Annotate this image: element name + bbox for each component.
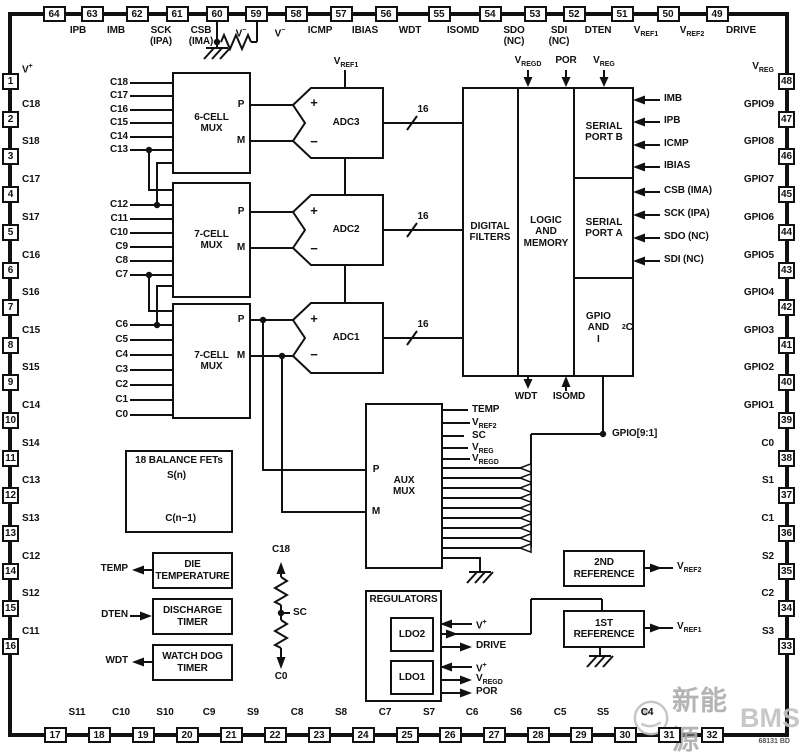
chain-c18-label: C18 [259, 544, 303, 555]
pin-label: C9 [189, 707, 229, 718]
pin-box: 42 [778, 299, 795, 316]
block-serial-port-b: SERIALPORT B [575, 87, 633, 177]
block-logic-memory: LOGICANDMEMORY [518, 87, 574, 377]
adc-name-label: ADC3 [321, 117, 371, 128]
regulator-io-label: V+ [476, 617, 536, 631]
adc-plus-sign: + [306, 204, 322, 217]
mux-input-label: C5 [86, 334, 128, 345]
mux-input-label: C11 [86, 213, 128, 224]
pin-box: 5 [2, 224, 19, 241]
pin-box: 40 [778, 374, 795, 391]
aux-input-label: VREGD [472, 453, 532, 468]
pin-box: 16 [2, 638, 19, 655]
mux-output-label: M [234, 135, 248, 146]
gpio-bus-label: GPIO[9:1] [612, 428, 682, 439]
pin-label: C5 [540, 707, 580, 718]
pin-label: SDI(NC) [537, 25, 581, 47]
pin-label: DRIVE [719, 25, 763, 36]
vref1-adc-label: VREF1 [318, 56, 374, 71]
pin-box: 13 [2, 525, 19, 542]
pin-box: 4 [2, 186, 19, 203]
pin-label: C16 [22, 250, 68, 261]
pin-label: C0 [718, 438, 774, 449]
pin-label: GPIO7 [718, 174, 774, 185]
figure-code: 68131 BD [726, 738, 790, 745]
pin-box: 49 [706, 6, 729, 22]
fet-source-label: S(n) [146, 470, 186, 481]
wires-logic-bottom [528, 375, 566, 391]
pin-box: 11 [2, 450, 19, 467]
block-diagram: 6-CELLMUX 7-CELLMUX 7-CELLMUX DIGITALFIL… [0, 0, 800, 753]
regulators-title: REGULATORS [365, 594, 442, 605]
pin-box: 59 [245, 6, 268, 22]
pin-box: 56 [375, 6, 398, 22]
pin-label: S6 [496, 707, 536, 718]
pin-box: 3 [2, 148, 19, 165]
pin-box: 14 [2, 563, 19, 580]
pin-label: S17 [22, 212, 68, 223]
mux-output-label: P [369, 464, 383, 475]
pin-label: S12 [22, 588, 68, 599]
pin-label: C4 [627, 707, 667, 718]
pin-label: S9 [233, 707, 273, 718]
pin-box: 64 [43, 6, 66, 22]
logic-top-label: VREG [577, 55, 631, 70]
aux-input-label: SC [472, 430, 532, 441]
pin-label: C8 [277, 707, 317, 718]
block-watchdog-timer: WATCH DOGTIMER [152, 644, 233, 681]
pin-label: GPIO3 [718, 325, 774, 336]
pin-label: C1 [718, 513, 774, 524]
port-b-input-label: IMB [664, 93, 734, 104]
pin-label: ICMP [298, 25, 342, 36]
pin-box: 15 [2, 600, 19, 617]
pin-box: 26 [439, 727, 462, 743]
pin-box: 46 [778, 148, 795, 165]
left-io-label: DTEN [84, 609, 128, 620]
mux-input-label: C2 [86, 379, 128, 390]
pin-label: S16 [22, 287, 68, 298]
aux-input-label: TEMP [472, 404, 532, 415]
fet-cell-label: C(n−1) [128, 513, 196, 524]
pin-label: V− [258, 25, 302, 39]
pin-box: 32 [701, 727, 724, 743]
mux-input-label: C13 [86, 144, 128, 155]
pin-label: DTEN [576, 25, 620, 36]
port-a-input-label: CSB (IMA) [664, 185, 734, 196]
mux-output-label: M [369, 506, 383, 517]
block-discharge-timer: DISCHARGETIMER [152, 598, 233, 635]
mux-input-label: C7 [86, 269, 128, 280]
pin-label: C15 [22, 325, 68, 336]
block-1st-reference: 1STREFERENCE [563, 610, 645, 648]
pin-label: SCK(IPA) [139, 25, 183, 47]
port-a-input-label: SDI (NC) [664, 254, 734, 265]
open-arrowheads-gpio [520, 464, 531, 552]
isomd-in-label: ISOMD [547, 391, 591, 402]
wdt-out-label: WDT [506, 391, 546, 402]
pin-box: 33 [778, 638, 795, 655]
pin-box: 6 [2, 262, 19, 279]
pin-label: C12 [22, 551, 68, 562]
vref2-out-label: VREF2 [677, 561, 731, 576]
port-b-input-label: IBIAS [664, 160, 734, 171]
pin-box: 60 [206, 6, 229, 22]
pin-box: 19 [132, 727, 155, 743]
pin-label: C14 [22, 400, 68, 411]
pin-label: S7 [409, 707, 449, 718]
pin-label: S10 [145, 707, 185, 718]
pin-box: 20 [176, 727, 199, 743]
pin-label: VREG [718, 61, 774, 76]
arrowheads-serial-inputs [633, 96, 645, 266]
pin-box: 48 [778, 73, 795, 90]
pin-label: CSB(IMA) [179, 25, 223, 47]
mux-output-label: M [234, 242, 248, 253]
pin-box: 34 [778, 600, 795, 617]
block-2nd-reference: 2NDREFERENCE [563, 550, 645, 587]
pin-box: 57 [330, 6, 353, 22]
bus-width-label: 16 [411, 211, 435, 222]
pin-box: 2 [2, 111, 19, 128]
pin-box: 29 [570, 727, 593, 743]
pin-label: C17 [22, 174, 68, 185]
pin-label: S11 [57, 707, 97, 718]
pin-label: WDT [388, 25, 432, 36]
pin-label: S15 [22, 362, 68, 373]
regulator-io-label: DRIVE [476, 640, 536, 651]
pin-box: 43 [778, 262, 795, 279]
mux-input-label: C14 [86, 131, 128, 142]
chain-sc-label: SC [293, 607, 323, 618]
wires-mux-inputs [130, 83, 172, 415]
pin-box: 61 [166, 6, 189, 22]
port-a-input-label: SDO (NC) [664, 231, 734, 242]
adc-plus-sign: + [306, 312, 322, 325]
block-ldo2: LDO2 [390, 617, 434, 652]
pin-label: S13 [22, 513, 68, 524]
pin-label: GPIO1 [718, 400, 774, 411]
pin-box: 10 [2, 412, 19, 429]
port-b-input-label: IPB [664, 115, 734, 126]
pin-box: 21 [220, 727, 243, 743]
mux-input-label: C12 [86, 199, 128, 210]
pin-box: 7 [2, 299, 19, 316]
block-digital-filters: DIGITALFILTERS [462, 87, 518, 377]
arrowheads-logic-top [524, 77, 609, 87]
pin-box: 25 [396, 727, 419, 743]
regulator-io-label: POR [476, 686, 536, 697]
adc-plus-sign: + [306, 96, 322, 109]
pin-label: GPIO4 [718, 287, 774, 298]
mux-input-label: C3 [86, 364, 128, 375]
left-io-label: TEMP [84, 563, 128, 574]
adc-name-label: ADC1 [321, 332, 371, 343]
adc-minus-sign: − [306, 348, 322, 361]
port-a-input-label: SCK (IPA) [664, 208, 734, 219]
pin-box: 36 [778, 525, 795, 542]
block-serial-port-a: SERIALPORT A [575, 179, 633, 277]
pin-label: S3 [718, 626, 774, 637]
mux-input-label: C8 [86, 255, 128, 266]
arrowheads-logic-bottom [524, 376, 571, 389]
chain-c0-label: C0 [259, 671, 303, 682]
mux-input-label: C1 [86, 394, 128, 405]
balance-fets-title: 18 BALANCE FETs [127, 455, 231, 466]
pin-label: C18 [22, 99, 68, 110]
pin-box: 58 [285, 6, 308, 22]
pin-label: S2 [718, 551, 774, 562]
mux-input-label: C10 [86, 227, 128, 238]
pin-label: S5 [583, 707, 623, 718]
bus-width-label: 16 [411, 104, 435, 115]
pin-label: V+ [22, 61, 68, 75]
pin-label: VREF2 [670, 25, 714, 40]
pin-label: C13 [22, 475, 68, 486]
left-io-label: WDT [84, 655, 128, 666]
pin-box: 27 [483, 727, 506, 743]
pin-box: 12 [2, 487, 19, 504]
arrowheads-references [650, 564, 662, 633]
mux-input-label: C9 [86, 241, 128, 252]
pin-box: 45 [778, 186, 795, 203]
pin-label: C11 [22, 626, 68, 637]
pin-box: 9 [2, 374, 19, 391]
mux-output-label: M [234, 350, 248, 361]
mux-input-label: C0 [86, 409, 128, 420]
pin-box: 39 [778, 412, 795, 429]
mux-input-label: C6 [86, 319, 128, 330]
block-7cell-mux-mid: 7-CELLMUX [172, 182, 251, 298]
pin-label: SDO(NC) [492, 25, 536, 47]
pin-box: 63 [81, 6, 104, 22]
mux-input-label: C15 [86, 117, 128, 128]
pin-box: 50 [657, 6, 680, 22]
pin-label: IBIAS [343, 25, 387, 36]
pin-box: 18 [88, 727, 111, 743]
pin-label: ISOMD [441, 25, 485, 36]
pin-label: S18 [22, 136, 68, 147]
pin-label: S14 [22, 438, 68, 449]
pin-label: VREF1 [624, 25, 668, 40]
mux-input-label: C18 [86, 77, 128, 88]
block-ldo1: LDO1 [390, 660, 434, 695]
pin-label: C10 [101, 707, 141, 718]
mux-input-label: C4 [86, 349, 128, 360]
pin-label: IMB [94, 25, 138, 36]
block-aux-mux: AUXMUX [365, 403, 443, 569]
pin-box: 22 [264, 727, 287, 743]
pin-box: 28 [527, 727, 550, 743]
pin-label: C6 [452, 707, 492, 718]
adc-minus-sign: − [306, 242, 322, 255]
arrowheads-regulators [440, 620, 472, 698]
pin-label: S1 [718, 475, 774, 486]
pin-box: 23 [308, 727, 331, 743]
mux-input-label: C17 [86, 90, 128, 101]
pin-label: S8 [321, 707, 361, 718]
pin-box: 62 [126, 6, 149, 22]
pin-label: C7 [365, 707, 405, 718]
pin-box: 35 [778, 563, 795, 580]
pin-box: 17 [44, 727, 67, 743]
mux-output-label: P [234, 99, 248, 110]
pin-box: 47 [778, 111, 795, 128]
pin-box: 41 [778, 337, 795, 354]
mux-output-label: P [234, 314, 248, 325]
pin-box: 44 [778, 224, 795, 241]
pin-label: C2 [718, 588, 774, 599]
pin-box: 8 [2, 337, 19, 354]
adc-name-label: ADC2 [321, 224, 371, 235]
pin-box: 38 [778, 450, 795, 467]
pin-box: 53 [524, 6, 547, 22]
mux-output-label: P [234, 206, 248, 217]
pin-label: GPIO2 [718, 362, 774, 373]
pin-box: 51 [611, 6, 634, 22]
pin-box: 52 [563, 6, 586, 22]
pin-box: 54 [479, 6, 502, 22]
pin-label: V− [219, 25, 263, 39]
bus-width-label: 16 [411, 319, 435, 330]
adc-minus-sign: − [306, 135, 322, 148]
pin-box: 30 [614, 727, 637, 743]
pin-box: 24 [352, 727, 375, 743]
pin-box: 1 [2, 73, 19, 90]
block-gpio-i2c: GPIO ANDI2C [575, 279, 633, 377]
mux-input-label: C16 [86, 104, 128, 115]
port-b-input-label: ICMP [664, 138, 734, 149]
pin-box: 31 [658, 727, 681, 743]
pin-box: 37 [778, 487, 795, 504]
block-6cell-mux: 6-CELLMUX [172, 72, 251, 174]
pin-box: 55 [428, 6, 451, 22]
block-die-temperature: DIETEMPERATURE [152, 552, 233, 589]
